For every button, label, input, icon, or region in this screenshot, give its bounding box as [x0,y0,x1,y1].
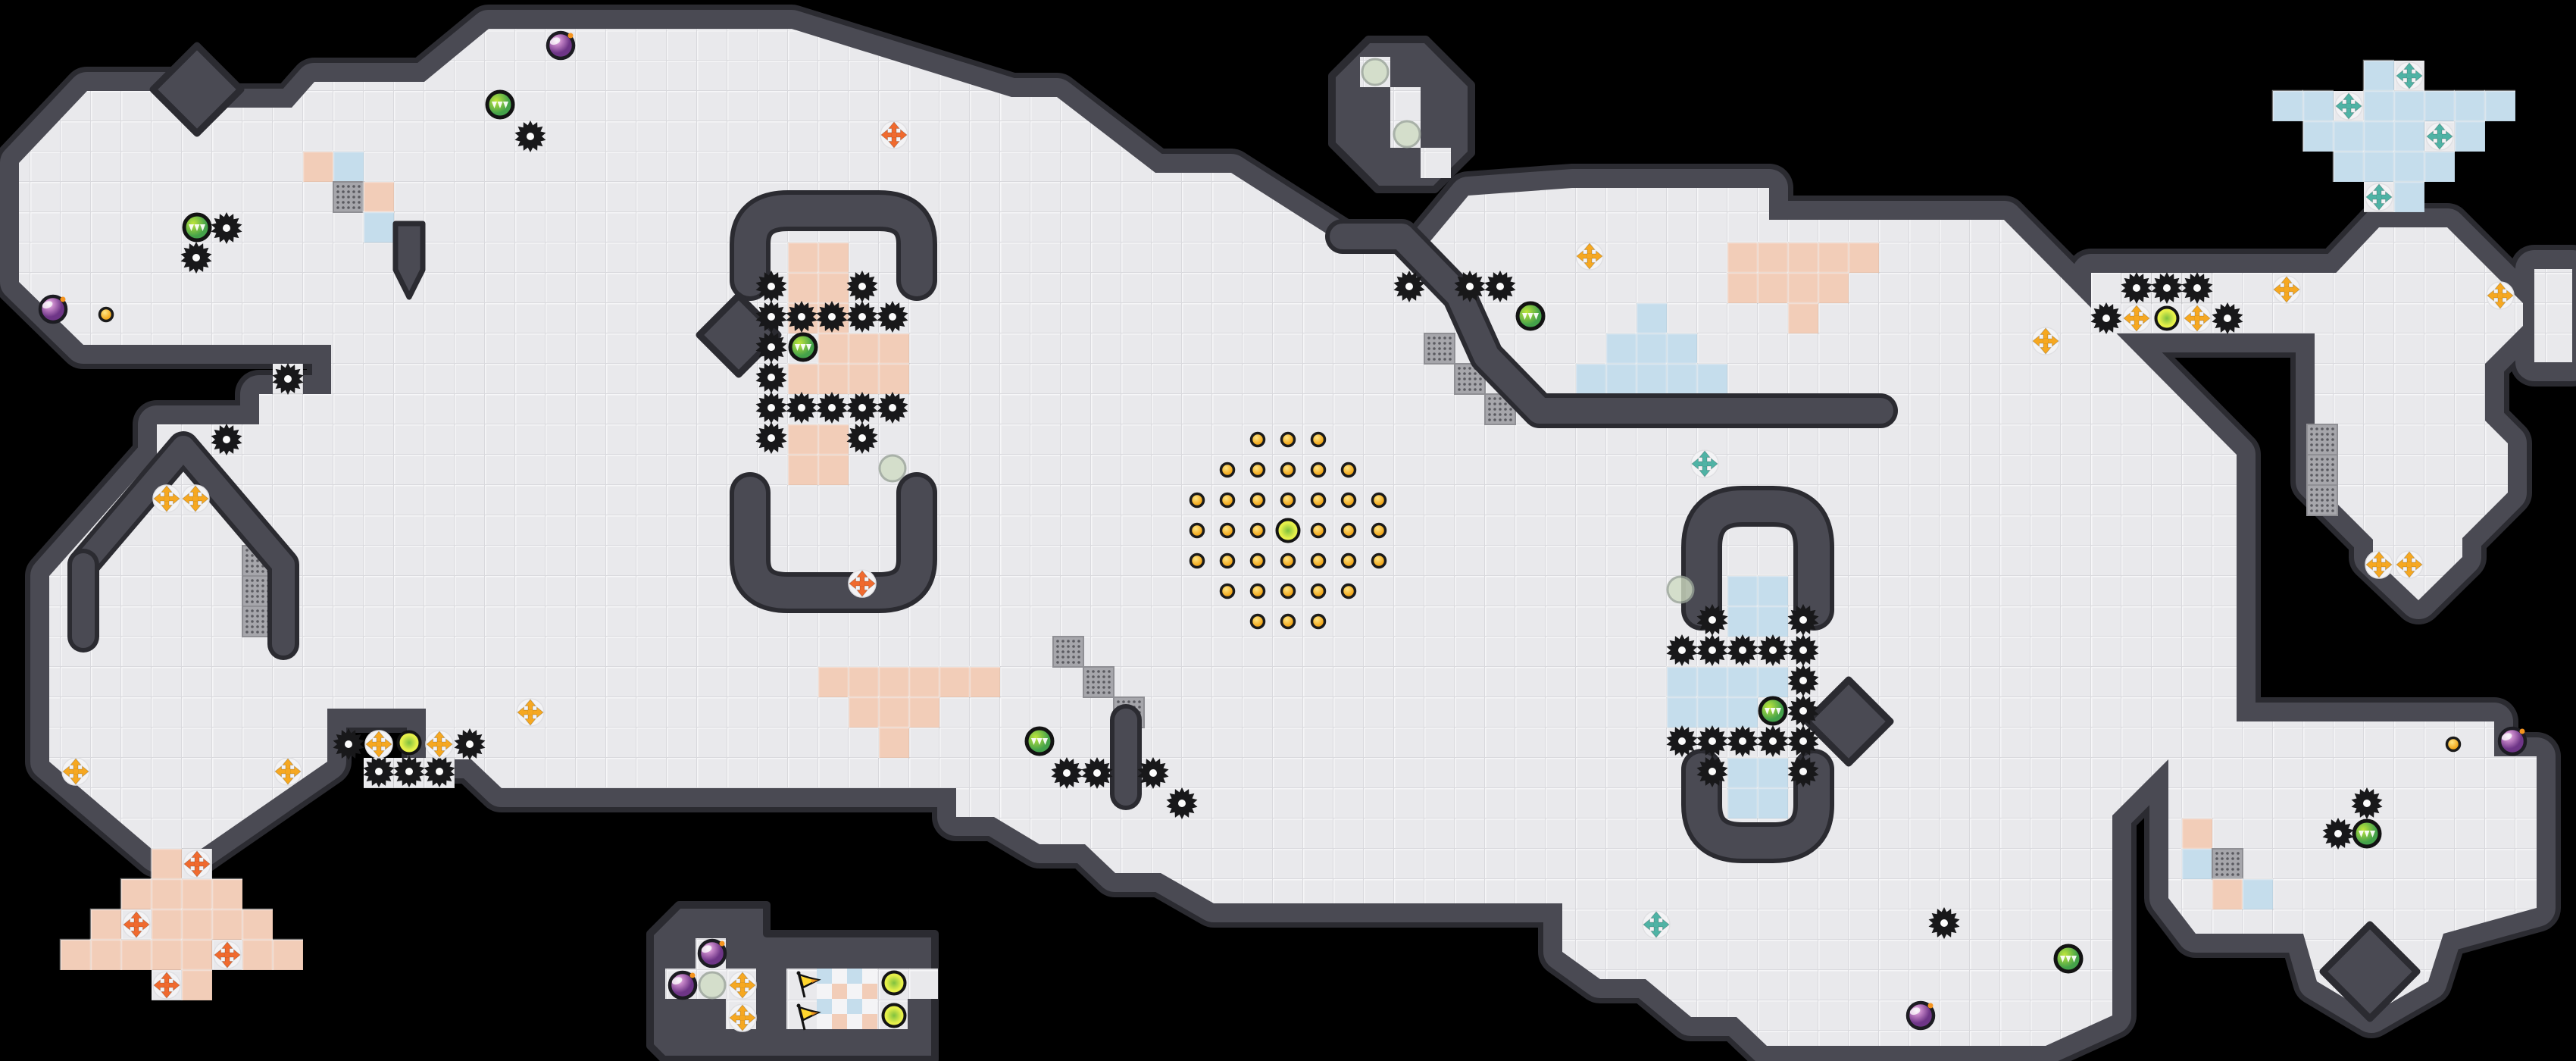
move-cross-yellow-icon[interactable] [274,758,302,785]
lime-orb-icon[interactable] [883,972,905,994]
blue-tile [1727,606,1758,637]
coin-icon[interactable] [1312,555,1325,568]
move-cross-yellow-icon[interactable] [365,731,392,758]
blue-tile [2334,121,2364,152]
salmon-tile [1818,273,1849,303]
coin-icon[interactable] [1312,433,1325,446]
salmon-tile [849,697,879,728]
spawn-pad-icon[interactable] [1668,577,1693,602]
coin-icon[interactable] [1312,524,1325,537]
move-cross-teal-icon[interactable] [1691,450,1718,477]
coin-icon[interactable] [1252,494,1265,507]
bomb-icon[interactable] [670,972,696,998]
salmon-tile [818,273,849,303]
level-map[interactable] [0,0,2576,1061]
blue-tile [1727,667,1758,697]
coin-icon[interactable] [1252,524,1265,537]
blue-tile [2364,121,2394,152]
checker-tile [847,969,877,999]
blue-tile [2303,91,2334,121]
salmon-tile [849,364,879,394]
move-cross-orange-icon[interactable] [849,570,876,597]
lime-orb-icon[interactable] [883,1005,905,1027]
blue-tile [2424,152,2455,182]
blue-tile [364,212,394,243]
spawn-pad-icon[interactable] [880,455,905,481]
floor-cell[interactable] [908,969,938,999]
floor-cell[interactable] [1421,148,1451,178]
blue-tile [2303,121,2334,152]
salmon-tile [788,364,818,394]
salmon-tile [818,364,849,394]
blue-tile [1606,364,1637,394]
salmon-tile [182,879,212,909]
blue-tile [1667,364,1697,394]
coin-icon[interactable] [1221,555,1234,568]
blue-tile [1758,667,1788,697]
move-cross-orange-icon[interactable] [214,941,241,969]
salmon-tile [242,940,273,970]
move-cross-orange-icon[interactable] [880,121,908,149]
move-cross-yellow-icon[interactable] [2487,282,2514,309]
salmon-tile [1727,273,1758,303]
coin-icon[interactable] [1191,494,1204,507]
salmon-tile [788,455,818,485]
coin-icon[interactable] [1282,615,1295,628]
spawn-pad-icon[interactable] [1394,121,1420,147]
blue-tile [1667,333,1697,364]
salmon-tile [879,697,909,728]
blue-tile [1637,364,1667,394]
blue-tile [1667,667,1697,697]
salmon-tile [1788,303,1818,333]
move-cross-orange-icon[interactable] [153,972,180,999]
salmon-tile [1788,243,1818,273]
salmon-tile [818,243,849,273]
blue-tile [2455,91,2485,121]
coin-icon[interactable] [1221,494,1234,507]
blue-tile [1758,576,1788,606]
salmon-tile [849,667,879,697]
coin-icon[interactable] [1221,524,1234,537]
salmon-tile [212,879,242,909]
spawn-pad-icon[interactable] [1362,59,1388,85]
grate-tile [2212,849,2243,879]
blue-tile [2364,152,2394,182]
lime-orb-icon[interactable] [399,732,420,754]
salmon-tile [818,424,849,455]
salmon-tile [879,364,909,394]
blue-tile [2364,61,2394,91]
coin-icon[interactable] [1312,494,1325,507]
salmon-tile [91,909,121,940]
coin-icon[interactable] [2447,738,2460,751]
move-cross-orange-icon[interactable] [183,850,211,878]
coin-icon[interactable] [1343,464,1355,477]
salmon-tile [909,697,939,728]
coin-icon[interactable] [1282,585,1295,598]
checker-tile [847,999,877,1029]
coin-icon[interactable] [1373,555,1386,568]
coin-icon[interactable] [1312,615,1325,628]
coin-icon[interactable] [1343,524,1355,537]
salmon-tile [1849,243,1879,273]
blue-tile [1576,364,1606,394]
green-orb-icon[interactable] [2354,821,2380,847]
green-orb-icon[interactable] [1760,698,1786,724]
coin-icon[interactable] [1252,585,1265,598]
grate-tile [1424,333,1455,364]
blue-tile [2455,121,2485,152]
coin-icon[interactable] [1312,585,1325,598]
blue-tile [1697,667,1727,697]
salmon-tile [212,909,242,940]
grate-tile [2307,424,2337,455]
move-cross-yellow-icon[interactable] [1576,243,1603,270]
salmon-tile [121,879,152,909]
move-cross-yellow-icon[interactable] [2273,276,2300,303]
salmon-tile [182,909,212,940]
grate-tile [1053,637,1083,667]
coin-icon[interactable] [1221,585,1234,598]
coin-icon[interactable] [100,308,113,321]
blue-tile [2394,91,2424,121]
coin-icon[interactable] [1282,494,1295,507]
lime-orb-icon[interactable] [2156,308,2178,330]
blue-tile [2394,152,2424,182]
blue-tile [2243,879,2273,909]
move-cross-yellow-icon[interactable] [2184,305,2211,332]
salmon-tile [1758,243,1788,273]
lime-orb-icon[interactable] [1277,520,1299,542]
blue-tile [1727,788,1758,818]
blue-tile [1727,697,1758,728]
move-cross-teal-icon[interactable] [2426,123,2453,150]
salmon-tile [849,333,879,364]
grate-tile [333,182,364,212]
move-cross-yellow-icon[interactable] [2365,551,2393,578]
tl-blue-dot [364,212,394,243]
salmon-tile [939,667,970,697]
move-cross-yellow-icon[interactable] [182,485,209,512]
green-orb-icon[interactable] [184,214,210,240]
coin-icon[interactable] [1343,585,1355,598]
blue-tile [1667,697,1697,728]
green-orb-icon[interactable] [2055,946,2081,972]
blue-tile [1727,576,1758,606]
move-cross-orange-icon[interactable] [123,911,150,938]
salmon-tile [788,273,818,303]
move-cross-teal-icon[interactable] [2365,183,2393,211]
salmon-tile [879,728,909,758]
coin-icon[interactable] [1343,494,1355,507]
blue-tile [2394,121,2424,152]
blue-tile [2424,91,2455,121]
coin-icon[interactable] [1312,464,1325,477]
salmon-tile [61,940,91,970]
blue-tile [2394,182,2424,212]
coin-icon[interactable] [1252,433,1265,446]
salmon-tile [242,909,273,940]
blue-tile [2334,152,2364,182]
coin-icon[interactable] [1373,524,1386,537]
salmon-tile [152,940,182,970]
move-cross-yellow-icon[interactable] [729,972,756,999]
salmon-tile [152,909,182,940]
salmon-tile [182,940,212,970]
goal-room-checker [817,969,877,1029]
right-room-grate-strip [2307,424,2337,515]
blue-tile [1758,788,1788,818]
salmon-tile [364,182,394,212]
move-cross-yellow-icon[interactable] [517,699,544,726]
right-top-room-east-bump-floor[interactable] [2534,269,2572,362]
salmon-tile [879,333,909,364]
move-cross-yellow-icon[interactable] [2032,327,2059,355]
move-cross-teal-icon[interactable] [2335,92,2362,120]
salmon-tile [909,667,939,697]
salmon-tile [818,333,849,364]
coin-icon[interactable] [1252,615,1265,628]
blue-tile [1637,303,1667,333]
coin-icon[interactable] [1191,555,1204,568]
blue-tile [2182,849,2212,879]
salmon-tile [2212,879,2243,909]
coin-icon[interactable] [1282,464,1295,477]
bomb-icon[interactable] [2499,728,2525,754]
spawn-pad-icon[interactable] [699,972,725,998]
game-viewport [0,0,2576,1061]
checker-tile [817,969,847,999]
salmon-tile [818,667,849,697]
salmon-tile [182,970,212,1000]
bomb-icon[interactable] [40,296,66,322]
move-cross-teal-icon[interactable] [2396,62,2423,89]
coin-icon[interactable] [1252,464,1265,477]
salmon-tile [788,243,818,273]
salmon-tile [879,667,909,697]
blue-tile [2364,91,2394,121]
coin-icon[interactable] [1282,433,1295,446]
grate-tile [2307,455,2337,485]
blue-tile [333,152,364,182]
coin-icon[interactable] [1282,555,1295,568]
salmon-tile [121,940,152,970]
salmon-tile [788,424,818,455]
green-orb-icon[interactable] [1518,303,1543,329]
salmon-tile [818,455,849,485]
blue-tile [1606,333,1637,364]
move-cross-yellow-icon[interactable] [2396,551,2423,578]
blue-tile [2485,91,2515,121]
bomb-icon[interactable] [699,941,725,966]
coin-icon[interactable] [1373,494,1386,507]
grate-tile [2307,485,2337,515]
salmon-tile [152,879,182,909]
blue-tile [1758,758,1788,788]
checker-tile [817,999,847,1029]
coin-icon[interactable] [1221,464,1234,477]
green-orb-icon[interactable] [1027,728,1052,754]
grate-tile [1083,667,1114,697]
coin-icon[interactable] [1252,555,1265,568]
salmon-tile [970,667,1000,697]
floor-cell[interactable] [1390,87,1421,117]
move-cross-yellow-icon[interactable] [426,731,453,758]
move-cross-teal-icon[interactable] [1643,911,1670,938]
salmon-tile [1727,243,1758,273]
move-cross-yellow-icon[interactable] [62,758,89,785]
blue-tile [1727,758,1758,788]
blue-tile [2273,91,2303,121]
green-orb-icon[interactable] [487,92,513,117]
blue-tile [1697,697,1727,728]
salmon-tile [273,940,303,970]
salmon-tile [91,940,121,970]
bomb-icon[interactable] [548,33,574,58]
blue-tile [1697,364,1727,394]
move-cross-yellow-icon[interactable] [2123,305,2150,332]
salmon-tile [1818,243,1849,273]
move-cross-yellow-icon[interactable] [153,485,180,512]
blue-tile [1637,333,1667,364]
salmon-tile [2182,818,2212,849]
bomb-icon[interactable] [1908,1003,1934,1028]
blue-tile [1758,606,1788,637]
salmon-tile [152,849,182,879]
salmon-tile [1788,273,1818,303]
green-orb-icon[interactable] [790,334,816,360]
salmon-tile [303,152,333,182]
coin-icon[interactable] [1343,555,1355,568]
move-cross-yellow-icon[interactable] [729,1004,756,1031]
salmon-tile [1758,273,1788,303]
coin-icon[interactable] [1191,524,1204,537]
